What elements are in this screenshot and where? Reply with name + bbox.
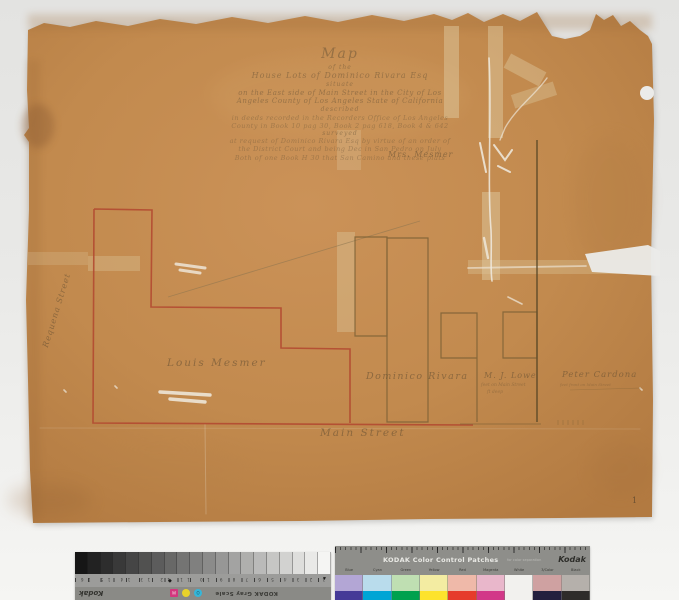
title-line: described: [175, 106, 505, 114]
gray-step: [177, 552, 190, 574]
label-peter-cardona-note: feet front on Main Street: [560, 382, 611, 387]
gray-step: [126, 552, 139, 574]
color-patches-light-row: [335, 575, 590, 591]
color-patch-yellow: [420, 575, 448, 591]
gray-step: [293, 552, 306, 574]
color-column-label: Black: [562, 567, 590, 575]
color-column-label: White: [505, 567, 533, 575]
label-dominico-rivara: Dominico Rivara: [366, 371, 469, 382]
label-main-street: Main Street: [320, 427, 406, 439]
diamond-marker-icon: ◆: [168, 578, 172, 584]
color-patch-red: [448, 575, 476, 591]
color-column-label: Blue: [335, 567, 363, 575]
title-line: on the East side of Main Street in the C…: [175, 89, 505, 98]
gray-step: [216, 552, 229, 574]
color-patch-black: [562, 575, 590, 591]
title-line: of the: [175, 64, 505, 72]
color-column-labels: BlueCyanGreenYellowRedMagentaWhite3/Colo…: [335, 567, 590, 575]
title-line: Angeles County of Los Angeles State of C…: [175, 97, 505, 106]
title-line: in deeds recorded in the Recorders Offic…: [175, 114, 505, 122]
gray-step: [190, 552, 203, 574]
label-mj-lowe-note2: ft deep: [487, 390, 503, 395]
arrow-marker-icon: ▼: [322, 577, 327, 582]
gray-step: [203, 552, 216, 574]
color-column-label: Magenta: [477, 567, 505, 575]
color-column-label: Green: [392, 567, 420, 575]
title-line: House Lots of Dominico Rivara Esq: [175, 71, 505, 81]
cyan-dot-icon: O: [194, 589, 202, 597]
color-patch-cyan: [363, 591, 391, 600]
color-column-label: Yellow: [420, 567, 448, 575]
title-line: surveyed: [175, 130, 505, 138]
kodak-logo: Kodak: [558, 555, 586, 564]
color-patch-3/color: [533, 591, 561, 600]
title-line: Map: [175, 46, 505, 64]
color-patch-3/color: [533, 575, 561, 591]
color-strip-header: KODAK Color Control Patches for color se…: [335, 553, 590, 567]
color-patches-dark-row: [335, 591, 590, 600]
gray-scale-gradient: [75, 552, 331, 574]
label-mrs-mesmer: Mrs. Mesmer: [388, 150, 453, 159]
gray-step: [267, 552, 280, 574]
kodak-logo: Kodak: [79, 589, 103, 597]
magenta-dot-icon: M: [170, 589, 178, 597]
gray-scale-numbers: 1 2 3 4 5 6 7 8 9 10 11 12 13 14 15 16 1…: [81, 577, 325, 582]
gray-scale-tick-row: 1 2 3 4 5 6 7 8 9 10 11 12 13 14 15 16 1…: [75, 574, 331, 587]
gray-step: [318, 552, 331, 574]
color-patch-green: [392, 575, 420, 591]
color-patch-cyan: [363, 575, 391, 591]
color-patch-magenta: [477, 575, 505, 591]
map-title-block: Map of the House Lots of Dominico Rivara…: [175, 46, 505, 162]
title-line: situate: [175, 81, 505, 89]
gray-scale-brand-row: Kodak M O KODAK Gray Scale: [75, 587, 331, 600]
color-patch-white: [505, 575, 533, 591]
label-mj-lowe-note: feet on Main Street: [481, 383, 526, 388]
label-peter-cardona: Peter Cardona: [562, 370, 637, 380]
gray-step: [113, 552, 126, 574]
color-strip-title: KODAK Color Control Patches: [383, 556, 498, 564]
gray-step: [305, 552, 318, 574]
gray-scale-title: KODAK Gray Scale: [215, 590, 278, 596]
color-patch-blue: [335, 591, 363, 600]
color-patch-red: [448, 591, 476, 600]
ruler-ticks: [335, 546, 590, 553]
yellow-dot-icon: [182, 589, 190, 597]
color-patch-green: [392, 591, 420, 600]
color-patch-yellow: [420, 591, 448, 600]
archival-map-scan: Map of the House Lots of Dominico Rivara…: [0, 0, 679, 600]
title-line: County in Book 10 pag 30, Book 2 pag 618…: [175, 122, 505, 130]
gray-step: [152, 552, 165, 574]
edge-bite-tear: [640, 86, 654, 100]
color-patch-blue: [335, 575, 363, 591]
gray-step: [241, 552, 254, 574]
label-mj-lowe: M. J. Lowe: [484, 371, 537, 380]
color-patch-magenta: [477, 591, 505, 600]
gray-step: [75, 552, 88, 574]
color-strip-subtitle: for color separation: [507, 558, 541, 562]
color-patch-black: [562, 591, 590, 600]
kodak-gray-scale-strip: 1 2 3 4 5 6 7 8 9 10 11 12 13 14 15 16 1…: [75, 552, 331, 600]
color-patch-white: [505, 591, 533, 600]
title-line: Both of one Book H 30 that San Camino an…: [175, 154, 505, 162]
page-number: 1: [632, 496, 638, 505]
gray-step: [88, 552, 101, 574]
gray-step: [229, 552, 242, 574]
title-line: the District Court and being Dec in San …: [175, 145, 505, 153]
gray-step: [254, 552, 267, 574]
ink-dot-markers: M O: [170, 589, 202, 597]
gray-step: [165, 552, 178, 574]
color-column-label: 3/Color: [533, 567, 561, 575]
color-column-label: Red: [448, 567, 476, 575]
gray-step: [139, 552, 152, 574]
color-column-label: Cyan: [363, 567, 391, 575]
kodak-color-control-strip: KODAK Color Control Patches for color se…: [335, 546, 590, 600]
label-louis-mesmer: Louis Mesmer: [167, 357, 267, 369]
gray-step: [101, 552, 114, 574]
title-line: at request of Dominico Rivara Esq by vir…: [175, 137, 505, 145]
gray-step: [280, 552, 293, 574]
